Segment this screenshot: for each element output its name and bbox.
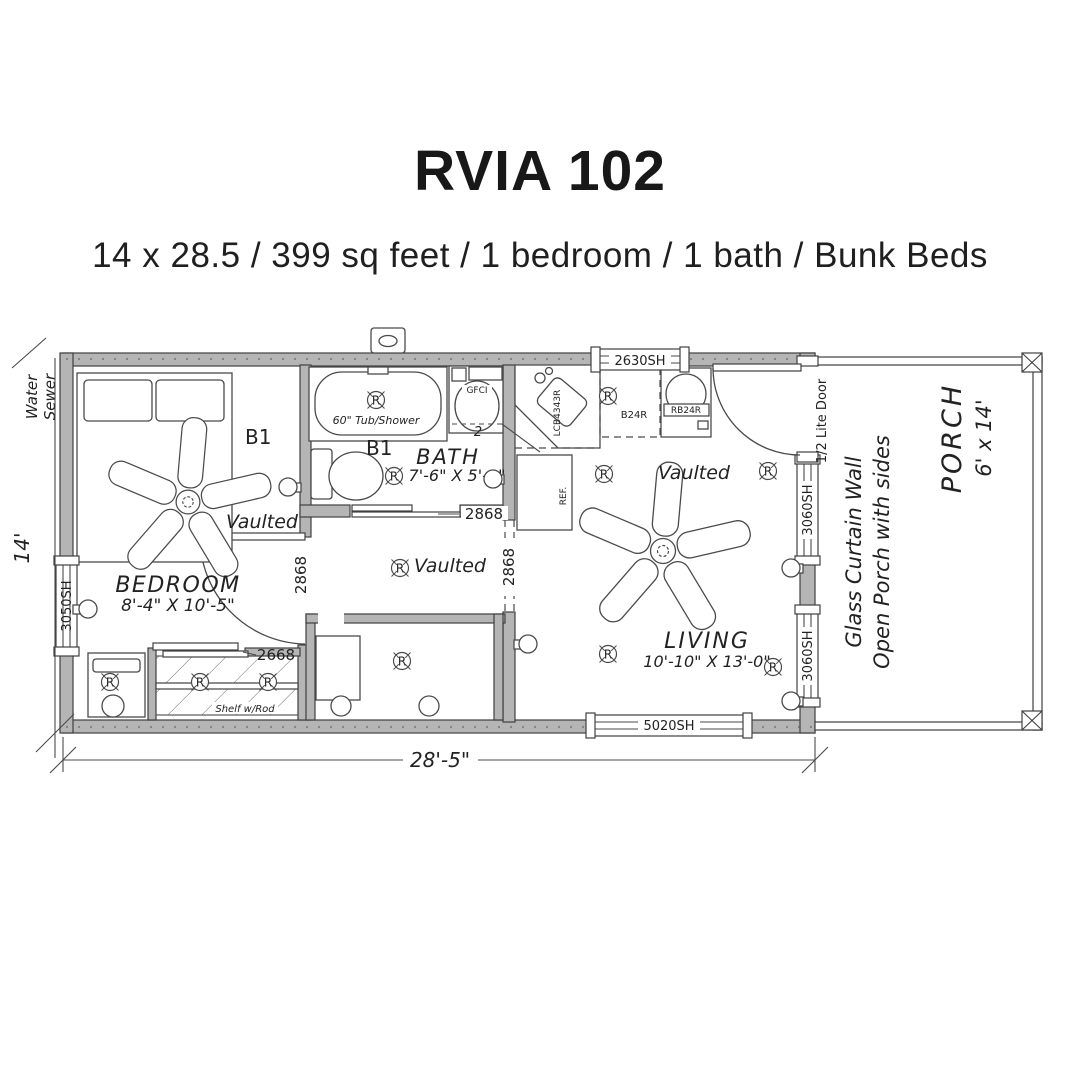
tub-label: 60" Tub/Shower [333, 414, 421, 427]
stool [102, 695, 124, 717]
window-right-lower-label: 3060SH [801, 630, 816, 681]
recessed-light-icon [102, 674, 119, 691]
fridge-label: REF. [559, 487, 569, 506]
window-right-upper-3060SH: 3060SH [795, 455, 820, 565]
living-ceiling-label: Vaulted [658, 462, 731, 484]
bunk-room [316, 636, 439, 716]
window-right-upper-label: 3060SH [801, 484, 816, 535]
window-top-2630SH: 2630SH [591, 347, 689, 372]
wall-light-icon [279, 478, 301, 496]
bath-door-label: 2868 [465, 505, 503, 523]
gap-dimension-label: 2 [474, 425, 482, 440]
porch-size-label: 6' x 14' [972, 399, 996, 476]
entry-door-label: 1/2 Lite Door [815, 378, 830, 463]
utility-label-line2: Sewer [41, 373, 59, 420]
recessed-light-icon [260, 674, 277, 691]
range-cabinet-label: RB24R [671, 406, 701, 416]
recessed-light-icon [368, 392, 385, 409]
living: Vaulted LIVING 10'-10" X 13'-0" [576, 461, 771, 671]
pillow [84, 380, 152, 421]
exterior-fixture-box [371, 328, 405, 353]
porch-post-bottom [1022, 711, 1042, 730]
page-title: RVIA 102 [0, 138, 1080, 204]
bath-vanity [449, 366, 503, 433]
living-ceiling-fan-icon [576, 461, 753, 634]
floor-plan-canvas: R [0, 320, 1080, 790]
recessed-light-icon [596, 466, 613, 483]
floor-plan-page: RVIA 102 14 x 28.5 / 399 sq feet / 1 bed… [0, 0, 1080, 1080]
pillow [156, 380, 224, 421]
bedroom-size-label: 8'-4" X 10'-5" [121, 596, 235, 616]
page-subtitle: 14 x 28.5 / 399 sq feet / 1 bedroom / 1 … [0, 236, 1080, 276]
bedroom: B1 Vaulted BEDROOM 8'-4" X 10'-5" [77, 373, 299, 616]
height-dimension-label: 14' [10, 533, 34, 564]
glass-wall-label-line2: Open Porch with sides [870, 435, 894, 669]
porch: Glass Curtain Wall Open Porch with sides… [815, 353, 1042, 730]
bedroom-ceiling-label: Vaulted [226, 511, 299, 533]
window-bottom-label: 5020SH [643, 719, 694, 734]
bath-door: 2868 [352, 505, 508, 523]
corner-cabinet-label: LCB4343R [553, 390, 563, 437]
recessed-light-icon [392, 560, 409, 577]
hall-opening-label: 2868 [500, 548, 518, 586]
window-right-lower-3060SH: 3060SH [795, 605, 820, 707]
window-top-label: 2630SH [614, 354, 665, 369]
bath-bunk-label: B1 [366, 436, 392, 460]
utility-label-line1: Water [23, 374, 41, 419]
living-label: LIVING [664, 629, 750, 654]
range-cabinet [661, 368, 711, 437]
closet-shelf-label: Shelf w/Rod [215, 704, 275, 715]
recessed-light-icon [600, 646, 617, 663]
bunk-bed [316, 636, 360, 700]
width-dimension-label: 28'-5" [410, 748, 470, 772]
porch-label: PORCH [937, 383, 968, 493]
recessed-light-icon [386, 468, 403, 485]
closet-door-label: 2668 [257, 646, 295, 664]
hall: Vaulted [414, 555, 487, 577]
bedroom-door-label: 2868 [292, 556, 310, 594]
glass-wall-label-line1: Glass Curtain Wall [842, 456, 866, 647]
porch-post-top [1022, 353, 1042, 372]
entry-door: 1/2 Lite Door [713, 356, 830, 463]
wall-light-icon [514, 635, 537, 653]
recessed-light-icon [192, 674, 209, 691]
base-cabinet-label: B24R [621, 410, 648, 421]
hall-opening: 2868 [500, 520, 518, 612]
bedroom-label: BEDROOM [115, 573, 240, 598]
gfci-label: GFCI [466, 386, 487, 396]
recessed-light-icon [760, 463, 777, 480]
recessed-light-icon [394, 653, 411, 670]
recessed-light-icon [600, 388, 617, 405]
living-size-label: 10'-10" X 13'-0" [643, 652, 770, 671]
recessed-light-icon [765, 659, 782, 676]
window-bottom-5020SH: 5020SH [586, 713, 752, 738]
bedroom-bunk-label: B1 [245, 425, 271, 449]
hall-ceiling-label: Vaulted [414, 555, 487, 577]
fridge: REF. [517, 455, 572, 530]
